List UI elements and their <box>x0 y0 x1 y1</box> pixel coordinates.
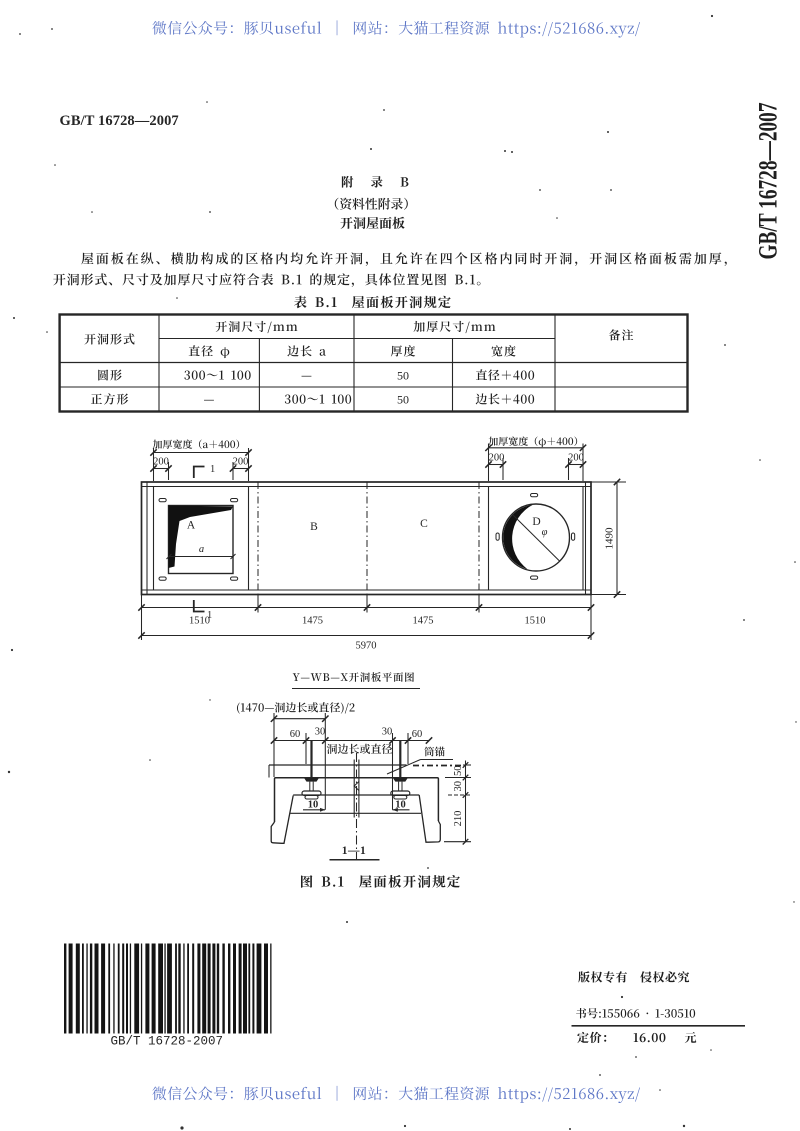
svg-text:200: 200 <box>489 453 505 464</box>
svg-text:C: C <box>420 518 428 530</box>
svg-text:60: 60 <box>290 729 301 740</box>
svg-text:B: B <box>310 521 318 533</box>
svg-text:1: 1 <box>210 464 215 475</box>
svg-text:200: 200 <box>153 457 169 468</box>
svg-text:60: 60 <box>412 729 423 740</box>
svg-text:10: 10 <box>308 800 319 811</box>
svg-text:GB/T 16728—2007: GB/T 16728—2007 <box>754 103 783 260</box>
svg-text:D: D <box>532 516 540 528</box>
svg-text:50: 50 <box>453 766 464 777</box>
svg-text:1475: 1475 <box>302 616 323 627</box>
svg-text:200: 200 <box>233 457 249 468</box>
svg-text:50: 50 <box>397 369 409 383</box>
svg-text:1—1: 1—1 <box>342 845 367 857</box>
svg-text:1490: 1490 <box>604 527 616 550</box>
svg-text:φ: φ <box>542 527 548 538</box>
svg-text:200: 200 <box>568 453 584 464</box>
svg-text:210: 210 <box>453 811 464 827</box>
svg-text:a: a <box>199 544 204 555</box>
svg-text:30: 30 <box>453 781 464 792</box>
svg-text:1475: 1475 <box>413 616 434 627</box>
svg-text:A: A <box>187 520 196 532</box>
svg-text:1510: 1510 <box>189 616 210 627</box>
svg-text:GB/T 16728-2007: GB/T 16728-2007 <box>111 1035 224 1049</box>
svg-text:30: 30 <box>382 727 393 738</box>
svg-text:50: 50 <box>397 393 409 407</box>
svg-text:30: 30 <box>315 727 326 738</box>
svg-text:5970: 5970 <box>356 641 377 652</box>
svg-text:GB/T 16728—2007: GB/T 16728—2007 <box>60 113 179 129</box>
svg-text:1510: 1510 <box>525 616 546 627</box>
